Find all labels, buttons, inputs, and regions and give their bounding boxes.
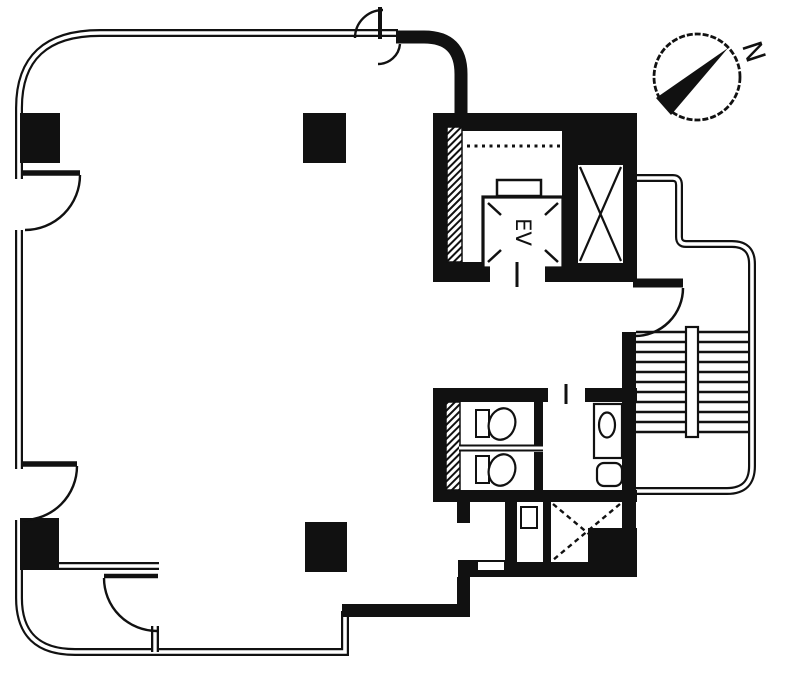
pipe-shaft-right-wall: [543, 502, 551, 562]
column-top-center: [303, 113, 346, 163]
stair-door: [633, 283, 683, 336]
closet-partition-wall: [59, 566, 159, 652]
pipe-shaft: [517, 502, 543, 562]
hatched-shaft-wall-ev: [447, 127, 462, 262]
ev-topright-wall: [575, 113, 637, 167]
ev-left-wall: [433, 113, 447, 282]
column-bottom-center: [305, 522, 347, 572]
floor-plan-page: EV: [0, 0, 787, 683]
stairs: [636, 327, 748, 437]
hatched-shaft-wall-wc: [446, 402, 460, 490]
south-wall-opening: [478, 562, 504, 570]
ev-indicator-box: [497, 180, 541, 196]
door-closet: [104, 576, 158, 631]
corridor-wall: [457, 502, 470, 523]
column-top-left: [20, 113, 60, 163]
south-thick-wall: [342, 604, 470, 617]
ev-right-wall: [623, 167, 637, 282]
door-arc: [23, 466, 77, 520]
toilet-tank-2: [476, 456, 489, 483]
shaft-x-room: [578, 165, 623, 263]
compass: N: [654, 34, 771, 120]
sink-basin: [599, 413, 615, 438]
toilet-stall-1: [476, 405, 520, 444]
stair-handrail: [686, 327, 698, 437]
stair-door-arc: [635, 288, 683, 336]
door-arc: [104, 578, 157, 631]
pipe-shaft-box: [521, 507, 537, 528]
curved-corner-wall: [396, 37, 461, 118]
toilet-top-wall-left: [433, 388, 548, 402]
north-label: N: [735, 38, 771, 67]
door-arc: [25, 175, 80, 230]
column-bottom-left: [20, 518, 59, 570]
door-opening-left-top: [13, 179, 29, 230]
sink-counter: [594, 404, 622, 458]
toilet-left-wall: [433, 388, 447, 502]
toilet-stall-2: [476, 451, 520, 490]
elevator-car: EV: [483, 197, 563, 268]
toilet-tank-1: [476, 410, 489, 437]
door-opening-left-bottom: [13, 469, 29, 520]
elevator-label: EV: [511, 218, 535, 246]
door-left-top: [22, 173, 80, 230]
door-left-bottom: [22, 464, 77, 520]
floor-plan-svg: EV: [0, 0, 787, 683]
pipe-shaft-left-wall: [505, 502, 517, 562]
duct-room-notch-wall: [588, 528, 637, 577]
north-needle: [656, 48, 728, 115]
slop-sink: [597, 463, 622, 486]
door-arc-inner: [378, 44, 400, 64]
